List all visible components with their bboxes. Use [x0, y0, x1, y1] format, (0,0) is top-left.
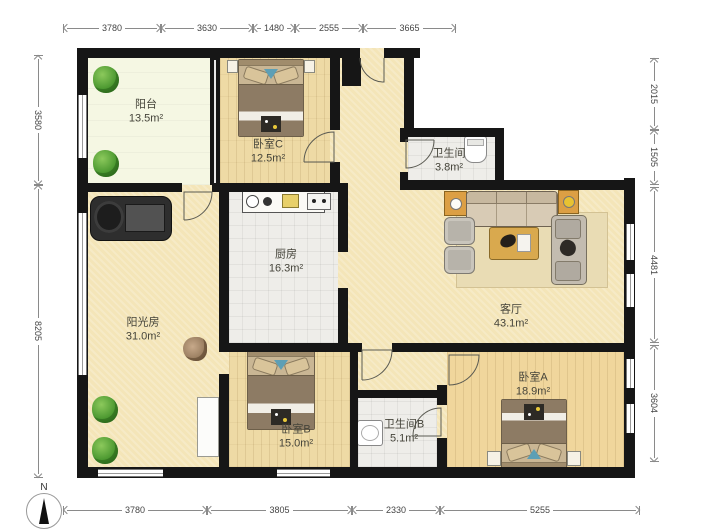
wall — [392, 343, 447, 352]
room-label-bathroom-b: 卫生间B 5.1m² — [384, 418, 424, 447]
dimension-value: 2330 — [383, 505, 409, 515]
wall — [212, 183, 348, 192]
room-area: 18.9m² — [516, 385, 550, 399]
room-name: 客厅 — [494, 303, 528, 317]
wall — [219, 343, 362, 352]
dimension-right-2: 1505 — [648, 130, 660, 185]
sofa-back — [467, 192, 557, 204]
wall — [342, 58, 361, 86]
wall — [219, 374, 229, 467]
window-icon — [78, 213, 87, 375]
double-bed-icon — [247, 350, 315, 430]
glass-partition — [210, 58, 220, 185]
nightstand-icon — [304, 60, 315, 73]
dimension-value: 3580 — [33, 107, 43, 133]
bed-body — [248, 375, 314, 429]
wall — [495, 128, 504, 187]
wall — [350, 348, 358, 467]
plant-icon — [93, 66, 119, 93]
room-name: 卧室A — [516, 371, 550, 385]
room-area: 12.5m² — [251, 152, 285, 166]
dimension-left-2: 8205 — [32, 185, 44, 478]
sofa-icon — [466, 191, 558, 227]
room-label-living-room: 客厅 43.1m² — [494, 303, 528, 332]
wall — [219, 183, 229, 344]
pet-decor-icon — [183, 337, 207, 361]
coffee-table-icon — [489, 227, 539, 260]
dimension-value: 3665 — [396, 23, 422, 33]
room-name: 卫生间 — [433, 147, 466, 161]
wall — [624, 178, 635, 478]
room-label-bedroom-c: 卧室C 12.5m² — [251, 138, 285, 167]
armchair-icon — [444, 246, 475, 274]
cushion — [555, 261, 581, 281]
room-area: 43.1m² — [494, 317, 528, 331]
dimension-bottom-1: 3780 — [63, 504, 207, 516]
dimension-value: 2015 — [649, 81, 659, 107]
dimension-top-5: 3665 — [363, 22, 456, 34]
room-label-balcony: 阳台 13.5m² — [129, 98, 163, 127]
room-area: 13.5m² — [129, 112, 163, 126]
dimension-value: 5255 — [527, 505, 553, 515]
table-decor-icon — [499, 233, 518, 249]
double-bed-icon — [238, 59, 304, 137]
tv-chest-icon — [524, 404, 544, 420]
treadmill-wheel — [94, 201, 124, 233]
lamp-icon — [563, 196, 575, 208]
window-icon — [626, 224, 634, 260]
room-name: 卧室C — [251, 138, 285, 152]
nightstand-icon — [227, 60, 238, 73]
double-bed-icon — [501, 399, 567, 469]
wall — [330, 162, 340, 192]
room-name: 卧室B — [279, 423, 313, 437]
wall — [338, 192, 348, 252]
room-area: 16.3m² — [269, 262, 303, 276]
stove-icon — [282, 194, 299, 208]
dimension-value: 8205 — [33, 318, 43, 344]
room-area: 31.0m² — [126, 330, 160, 344]
pillows — [239, 66, 303, 84]
wall — [404, 58, 414, 137]
toilet-icon — [464, 136, 487, 163]
bed-body — [239, 84, 303, 136]
dimension-top-2: 3630 — [161, 22, 253, 34]
room-name: 厨房 — [269, 248, 303, 262]
wardrobe-icon — [197, 397, 219, 457]
tray-icon — [517, 234, 531, 252]
north-compass-icon: N — [24, 482, 64, 529]
wall — [400, 128, 408, 142]
compass-circle — [26, 493, 62, 529]
room-label-kitchen: 厨房 16.3m² — [269, 248, 303, 277]
wall — [330, 58, 340, 130]
dimension-top-1: 3780 — [63, 22, 161, 34]
plant-icon — [93, 150, 119, 177]
dimension-value: 3630 — [194, 23, 220, 33]
cushion-decor — [558, 238, 579, 259]
dimension-value: 3805 — [266, 505, 292, 515]
exterior-area — [504, 40, 710, 180]
blanket-fold-icon — [274, 360, 288, 370]
room-area: 5.1m² — [384, 432, 424, 446]
cooktop-icon — [307, 193, 331, 210]
wall — [77, 183, 182, 192]
wall — [443, 343, 635, 352]
dimension-value: 1505 — [649, 144, 659, 170]
nightstand-icon — [487, 451, 501, 466]
sofa-seat — [467, 204, 557, 226]
wall — [338, 288, 348, 343]
window-icon — [626, 359, 634, 388]
room-label-bedroom-a: 卧室A 18.9m² — [516, 371, 550, 400]
compass-north-label: N — [24, 482, 64, 493]
plant-icon — [92, 396, 118, 423]
blanket-fold-icon — [527, 449, 541, 459]
wall — [352, 390, 443, 398]
floor-plan: 阳台 13.5m² 卧室C 12.5m² 卫生间 3.8m² 厨房 16.3m²… — [0, 0, 710, 532]
sink-basin-icon — [263, 197, 272, 206]
pillows — [502, 444, 566, 462]
dimension-right-1: 2015 — [648, 58, 660, 130]
room-name: 卫生间B — [384, 418, 424, 432]
window-icon — [98, 469, 163, 477]
lamp-icon — [450, 198, 462, 210]
dimension-value: 3780 — [99, 23, 125, 33]
dimension-right-3: 4481 — [648, 187, 660, 343]
wall — [400, 180, 635, 190]
room-label-bathroom: 卫生间 3.8m² — [433, 147, 466, 176]
washbasin-icon — [357, 420, 383, 446]
wall — [437, 438, 447, 467]
dimension-value: 2555 — [316, 23, 342, 33]
blanket-fold-icon — [264, 69, 278, 79]
chaise-sofa-icon — [551, 215, 587, 285]
window-icon — [78, 95, 87, 158]
nightstand-icon — [567, 451, 581, 466]
dimension-top-3: 1480 — [253, 22, 295, 34]
room-label-bedroom-b: 卧室B 15.0m² — [279, 423, 313, 452]
sink-icon — [246, 195, 259, 208]
room-area: 15.0m² — [279, 437, 313, 451]
treadmill-belt — [125, 204, 165, 232]
side-table-icon — [444, 191, 467, 216]
compass-needle — [39, 498, 49, 524]
treadmill-icon — [90, 196, 172, 241]
wall — [77, 48, 360, 58]
wall — [404, 128, 504, 137]
dimension-value: 4481 — [649, 252, 659, 278]
dimension-bottom-2: 3805 — [207, 504, 352, 516]
dimension-value: 3604 — [649, 390, 659, 416]
cushion — [555, 219, 581, 239]
dimension-bottom-3: 2330 — [352, 504, 440, 516]
dimension-left-1: 3580 — [32, 55, 44, 185]
room-area: 3.8m² — [433, 161, 466, 175]
dimension-top-4: 2555 — [295, 22, 363, 34]
wall — [400, 172, 408, 182]
window-icon — [626, 404, 634, 433]
room-name: 阳台 — [129, 98, 163, 112]
room-name: 阳光房 — [126, 316, 160, 330]
armchair-icon — [444, 217, 475, 245]
room-label-sunroom: 阳光房 31.0m² — [126, 316, 160, 345]
bed-body — [502, 400, 566, 444]
window-icon — [626, 274, 634, 307]
wall — [384, 48, 420, 58]
wall — [437, 385, 447, 405]
pillows — [248, 357, 314, 375]
plant-icon — [92, 437, 118, 464]
dimension-value: 1480 — [261, 23, 287, 33]
dimension-value: 3780 — [122, 505, 148, 515]
dimension-bottom-4: 5255 — [440, 504, 640, 516]
kitchen-counter-icon — [242, 189, 325, 213]
bed-chest-icon — [261, 116, 281, 132]
side-table-icon — [558, 190, 579, 214]
dimension-right-4: 3604 — [648, 345, 660, 462]
window-icon — [277, 469, 330, 477]
